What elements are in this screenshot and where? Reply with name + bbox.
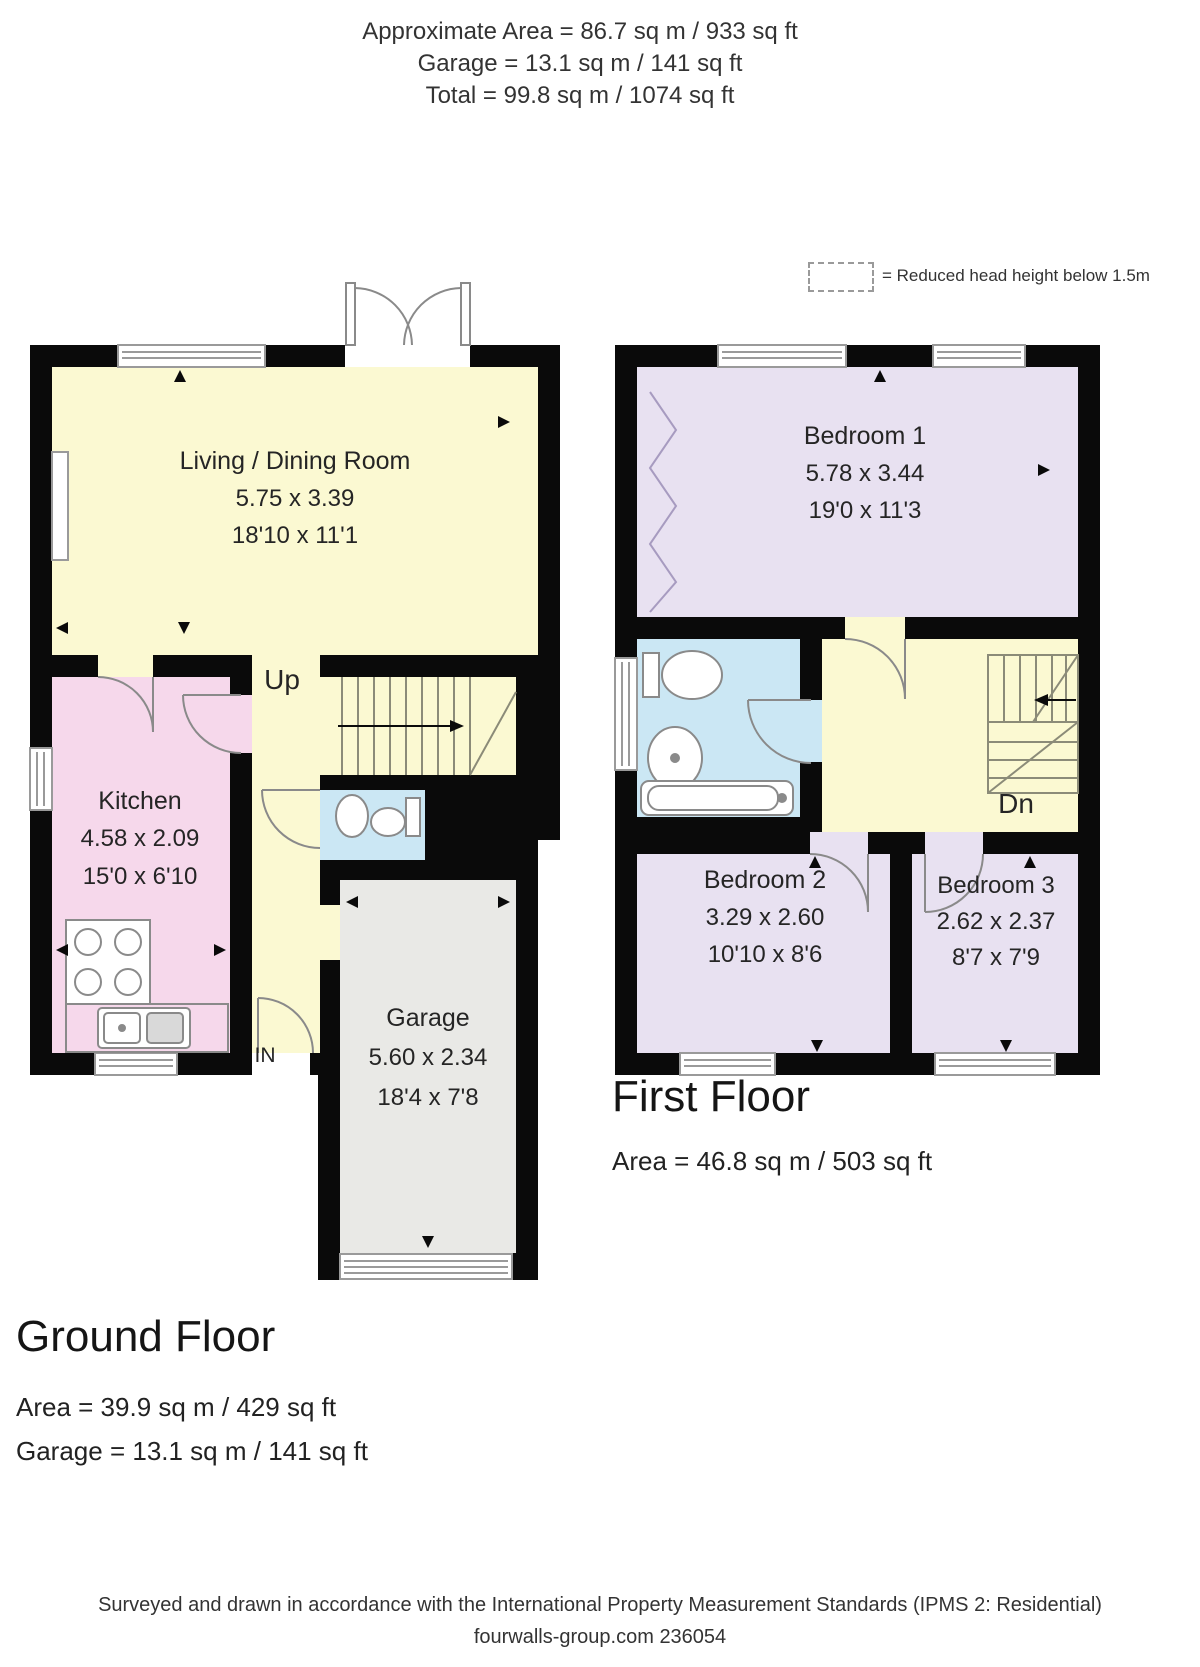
dn-label: Dn: [982, 788, 1050, 820]
living-dining-label: Living / Dining Room 5.75 x 3.39 18'10 x…: [120, 443, 470, 554]
garage-label: Garage 5.60 x 2.34 18'4 x 7'8: [342, 998, 514, 1118]
kitchen-window-bottom: [95, 1053, 177, 1075]
room-name: Bedroom 1: [715, 418, 1015, 455]
bedroom1-door-gap: [845, 617, 905, 639]
wc-toilet: [371, 808, 405, 836]
radiator: [52, 452, 68, 560]
toilet-bowl: [662, 651, 722, 699]
room-name: Kitchen: [42, 782, 238, 820]
ground-floor-garage-area: Garage = 13.1 sq m / 141 sq ft: [16, 1436, 368, 1467]
room-name: Bedroom 3: [906, 868, 1086, 904]
bathroom-window: [615, 658, 637, 770]
room-size-ft: 18'4 x 7'8: [342, 1078, 514, 1118]
bedroom2-label: Bedroom 2 3.29 x 2.60 10'10 x 8'6: [642, 862, 888, 973]
room-size-m: 5.78 x 3.44: [715, 455, 1015, 492]
up-label: Up: [248, 664, 316, 696]
room-size-m: 3.29 x 2.60: [642, 899, 888, 936]
room-size-m: 4.58 x 2.09: [42, 820, 238, 858]
ground-floor-area: Area = 39.9 sq m / 429 sq ft: [16, 1392, 336, 1423]
room-size-ft: 15'0 x 6'10: [42, 858, 238, 896]
in-label: IN: [236, 1044, 294, 1068]
reduced-head-height-swatch: [808, 262, 874, 292]
bathroom-door-gap: [800, 700, 822, 762]
room-size-m: 5.60 x 2.34: [342, 1038, 514, 1078]
room-name: Garage: [342, 998, 514, 1038]
standards-note: Surveyed and drawn in accordance with th…: [0, 1594, 1200, 1617]
room-size-ft: 10'10 x 8'6: [642, 936, 888, 973]
wc-sink: [336, 795, 368, 837]
reduced-head-height-label: = Reduced head height below 1.5m: [882, 266, 1150, 286]
first-floor-area: Area = 46.8 sq m / 503 sq ft: [612, 1146, 932, 1177]
floorplan-page: Approximate Area = 86.7 sq m / 933 sq ft…: [0, 0, 1200, 1667]
room-size-ft: 18'10 x 11'1: [120, 517, 470, 554]
kitchen-door-gap-1: [98, 655, 153, 677]
bedroom3-window: [935, 1053, 1055, 1075]
room-size-m: 5.75 x 3.39: [120, 480, 470, 517]
bedroom3-door-gap: [925, 832, 983, 854]
approximate-area-text: Approximate Area = 86.7 sq m / 933 sq ft: [0, 18, 1160, 46]
bedroom1-window-a: [718, 345, 846, 367]
room-name: Living / Dining Room: [120, 443, 470, 480]
kitchen-door-gap-2: [230, 695, 252, 753]
header-total-text: Total = 99.8 sq m / 1074 sq ft: [0, 82, 1160, 110]
kitchen-label: Kitchen 4.58 x 2.09 15'0 x 6'10: [42, 782, 238, 896]
bedroom3-label: Bedroom 3 2.62 x 2.37 8'7 x 7'9: [906, 868, 1086, 976]
room-name: Bedroom 2: [642, 862, 888, 899]
first-floor-title: First Floor: [612, 1072, 810, 1122]
toilet-cistern: [643, 653, 659, 697]
credit-note: fourwalls-group.com 236054: [0, 1626, 1200, 1649]
bedroom1-window-b: [933, 345, 1025, 367]
ground-floor-title: Ground Floor: [16, 1312, 275, 1362]
french-doors: [345, 283, 470, 367]
wc-cistern: [406, 798, 420, 836]
header-garage-text: Garage = 13.1 sq m / 141 sq ft: [0, 50, 1160, 78]
bedroom1-label: Bedroom 1 5.78 x 3.44 19'0 x 11'3: [715, 418, 1015, 529]
bedroom2-door-gap: [810, 832, 868, 854]
room-size-m: 2.62 x 2.37: [906, 904, 1086, 940]
living-window: [118, 345, 265, 367]
room-size-ft: 19'0 x 11'3: [715, 492, 1015, 529]
room-size-ft: 8'7 x 7'9: [906, 940, 1086, 976]
garage-door-gap: [318, 905, 340, 960]
